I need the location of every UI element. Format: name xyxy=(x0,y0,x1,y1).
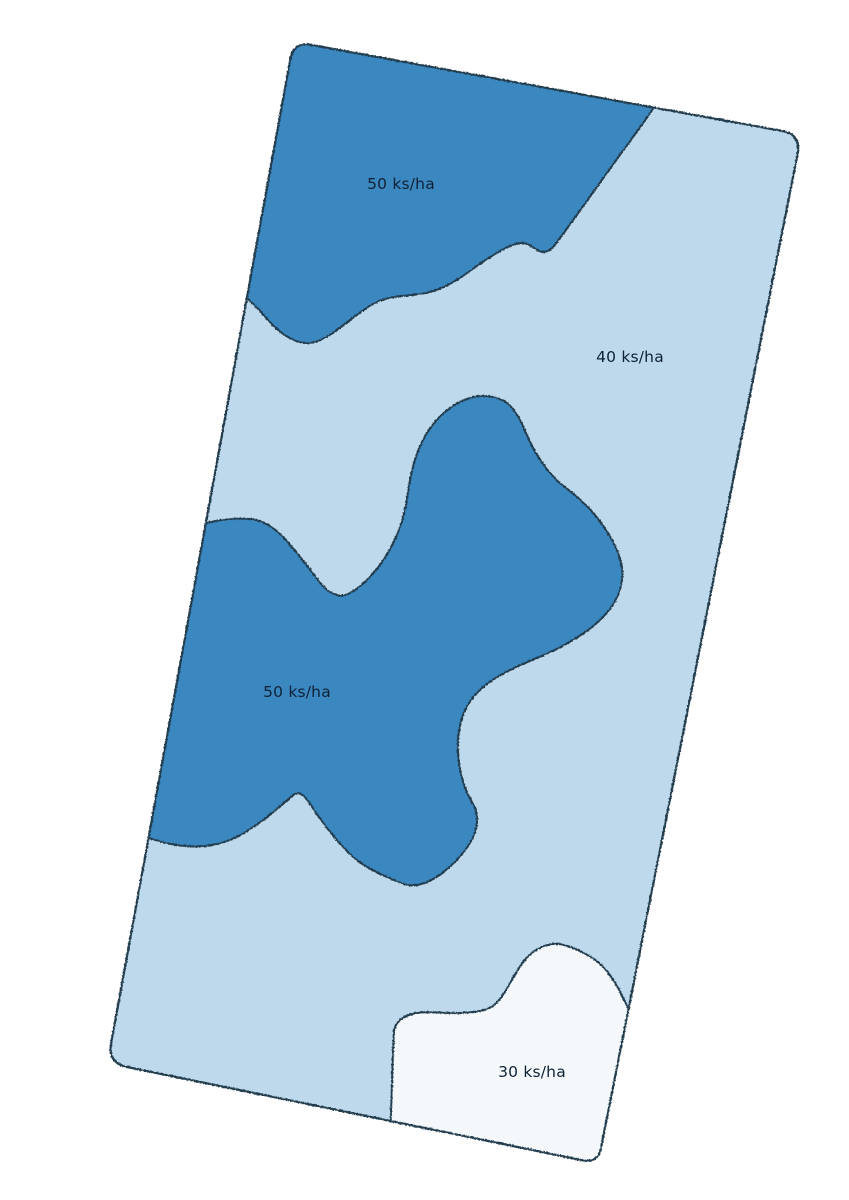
zone-label-central-50: 50 ks/ha xyxy=(263,683,331,701)
zone-label-south-30: 30 ks/ha xyxy=(498,1063,566,1081)
zone-label-east-40: 40 ks/ha xyxy=(596,348,664,366)
map-viewport: 50 ks/ha 40 ks/ha 50 ks/ha 30 ks/ha xyxy=(0,0,849,1200)
zone-label-north-50: 50 ks/ha xyxy=(367,175,435,193)
prescription-map-canvas[interactable]: 50 ks/ha 40 ks/ha 50 ks/ha 30 ks/ha xyxy=(0,0,849,1200)
